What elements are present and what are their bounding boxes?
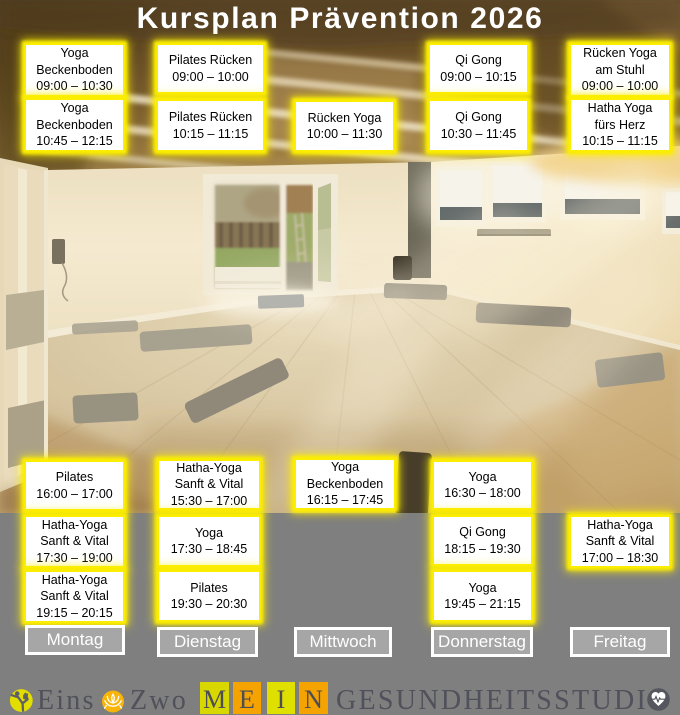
svg-text:GESUNDHEITSSTUDI: GESUNDHEITSSTUDI bbox=[336, 685, 648, 715]
svg-text:E: E bbox=[239, 685, 255, 714]
svg-text:N: N bbox=[304, 685, 323, 714]
svg-text:I: I bbox=[277, 685, 286, 714]
svg-text:Zwo: Zwo bbox=[130, 685, 188, 715]
svg-text:M: M bbox=[203, 685, 226, 714]
svg-text:Eins: Eins bbox=[37, 685, 96, 715]
